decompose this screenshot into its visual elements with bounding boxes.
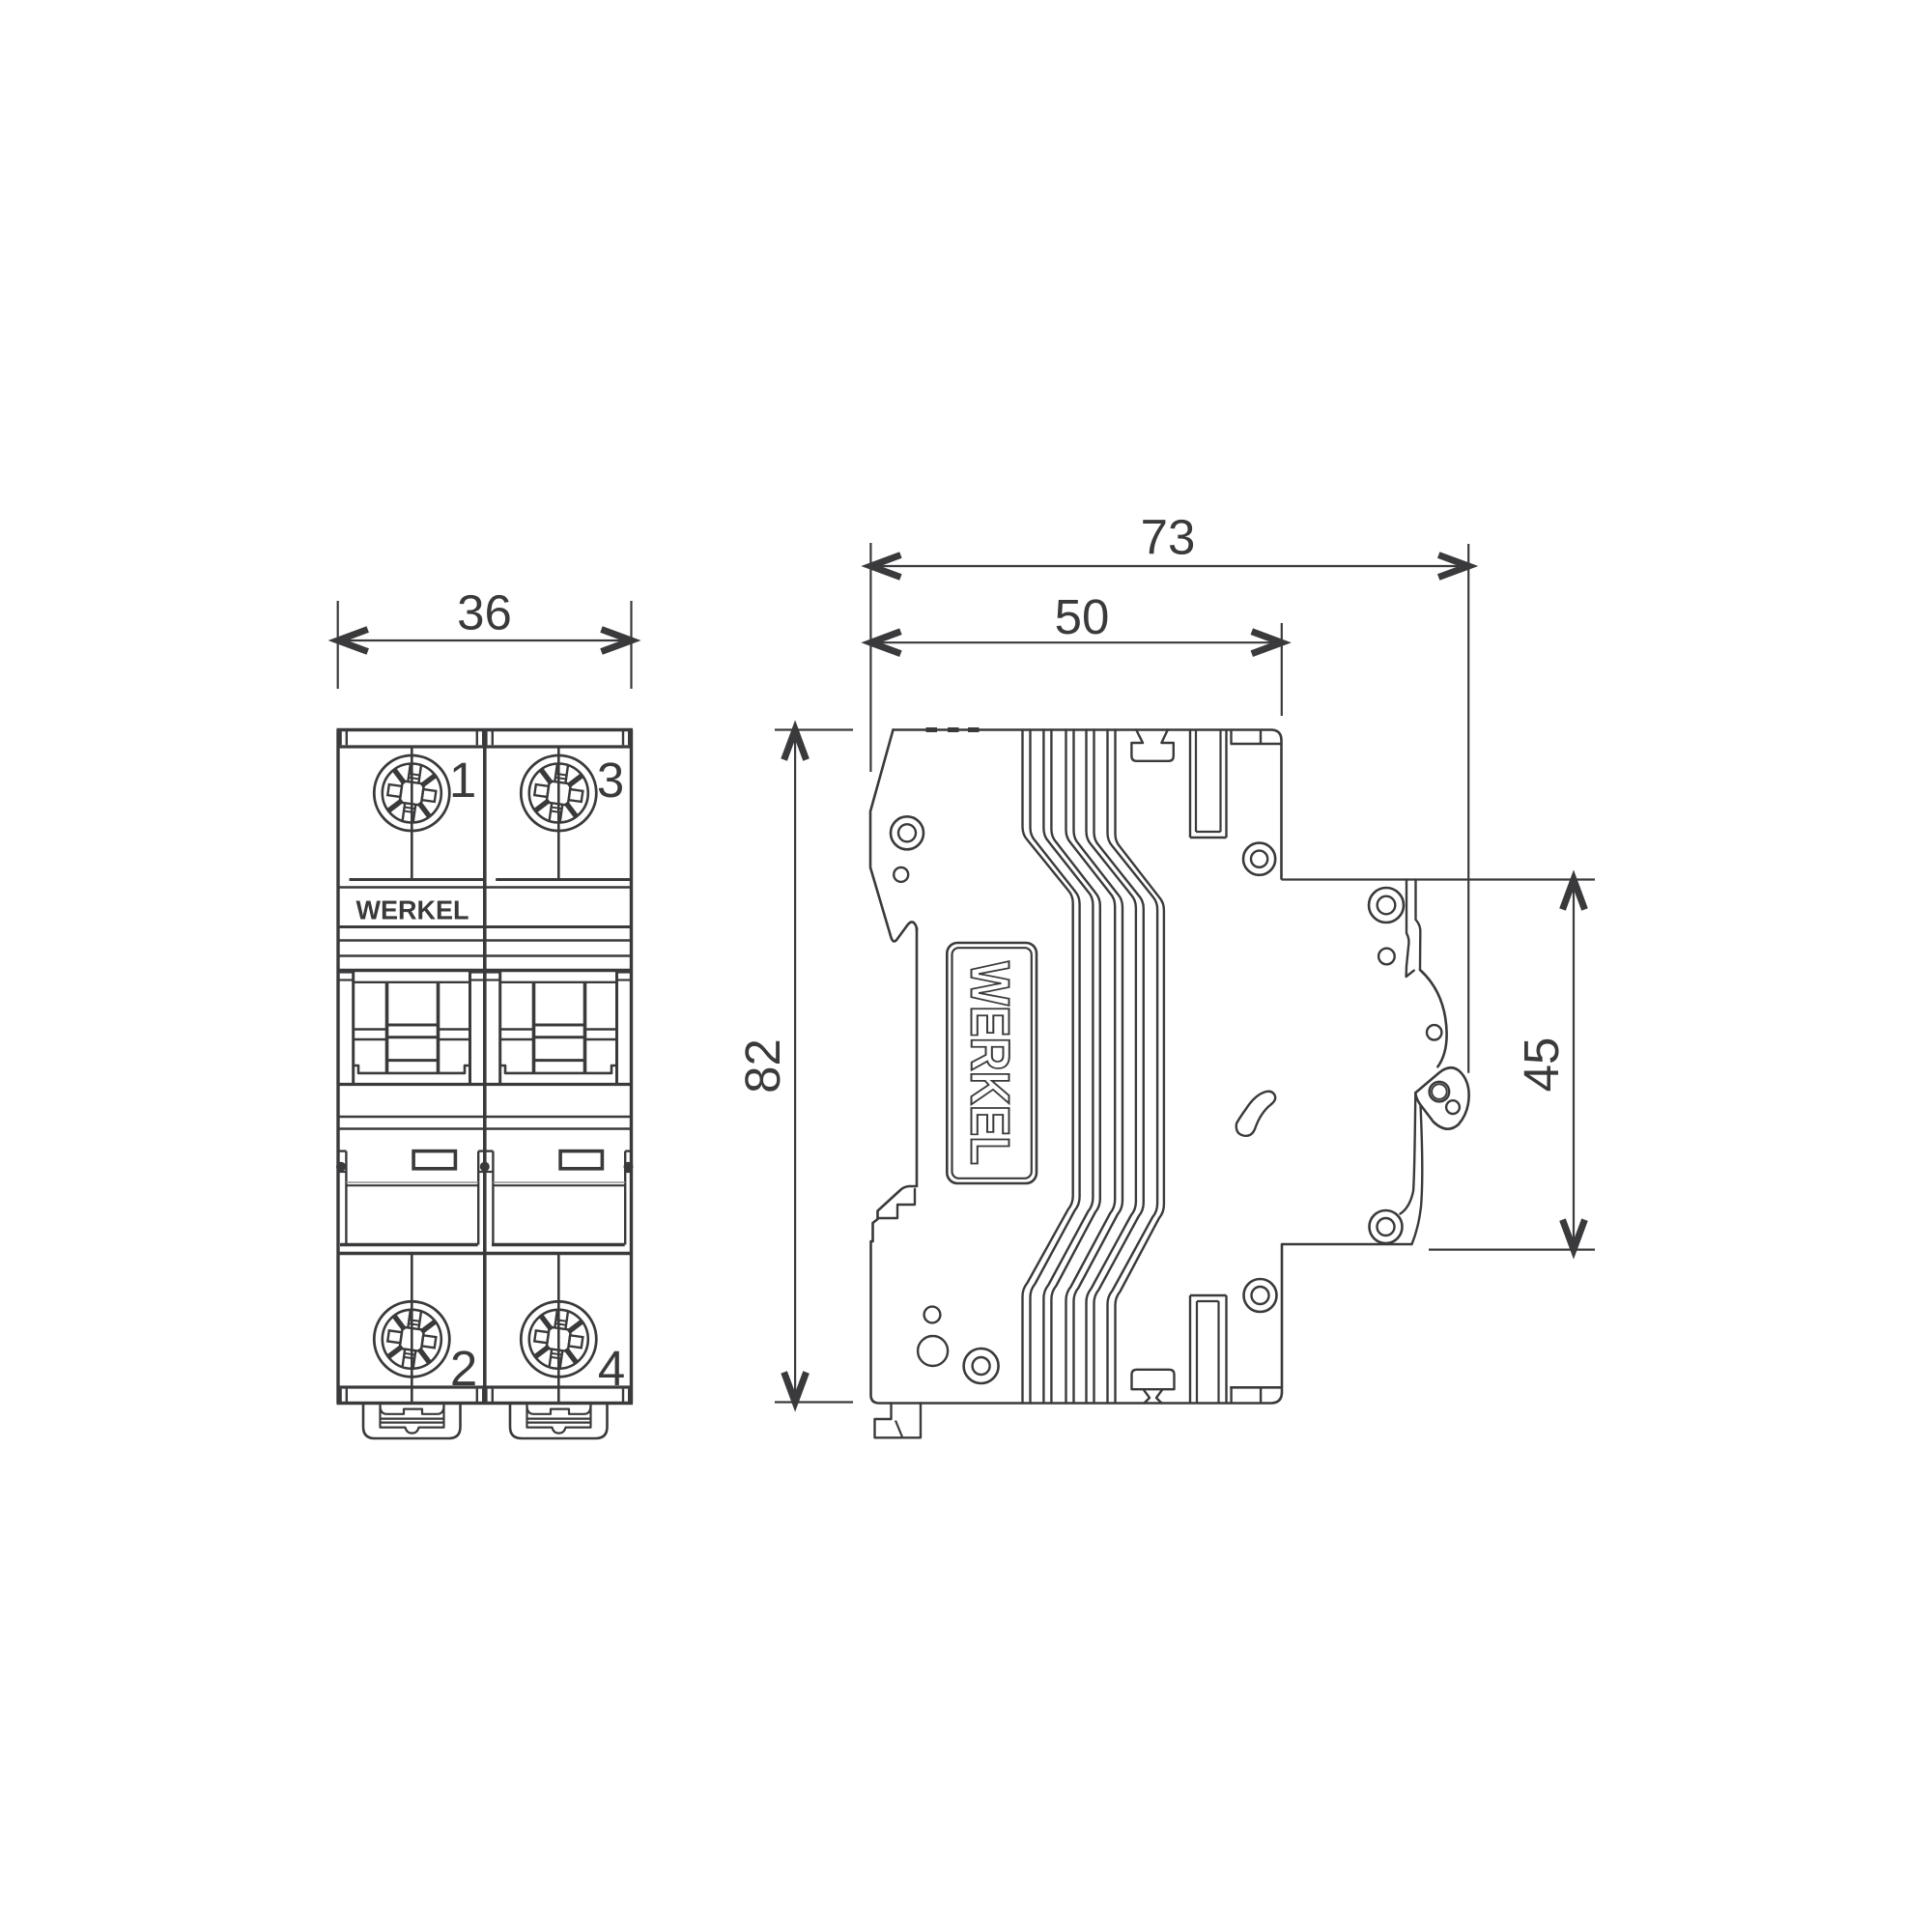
svg-text:WERKEL: WERKEL (959, 961, 1021, 1165)
svg-text:82: 82 (735, 1038, 790, 1094)
svg-text:45: 45 (1514, 1037, 1569, 1093)
svg-text:WERKEL: WERKEL (356, 895, 469, 925)
svg-text:1: 1 (449, 753, 476, 808)
svg-text:73: 73 (1141, 510, 1196, 565)
svg-text:4: 4 (598, 1341, 625, 1396)
svg-text:2: 2 (450, 1341, 477, 1396)
svg-text:50: 50 (1055, 589, 1110, 644)
svg-text:36: 36 (457, 585, 512, 640)
svg-text:3: 3 (597, 753, 624, 808)
